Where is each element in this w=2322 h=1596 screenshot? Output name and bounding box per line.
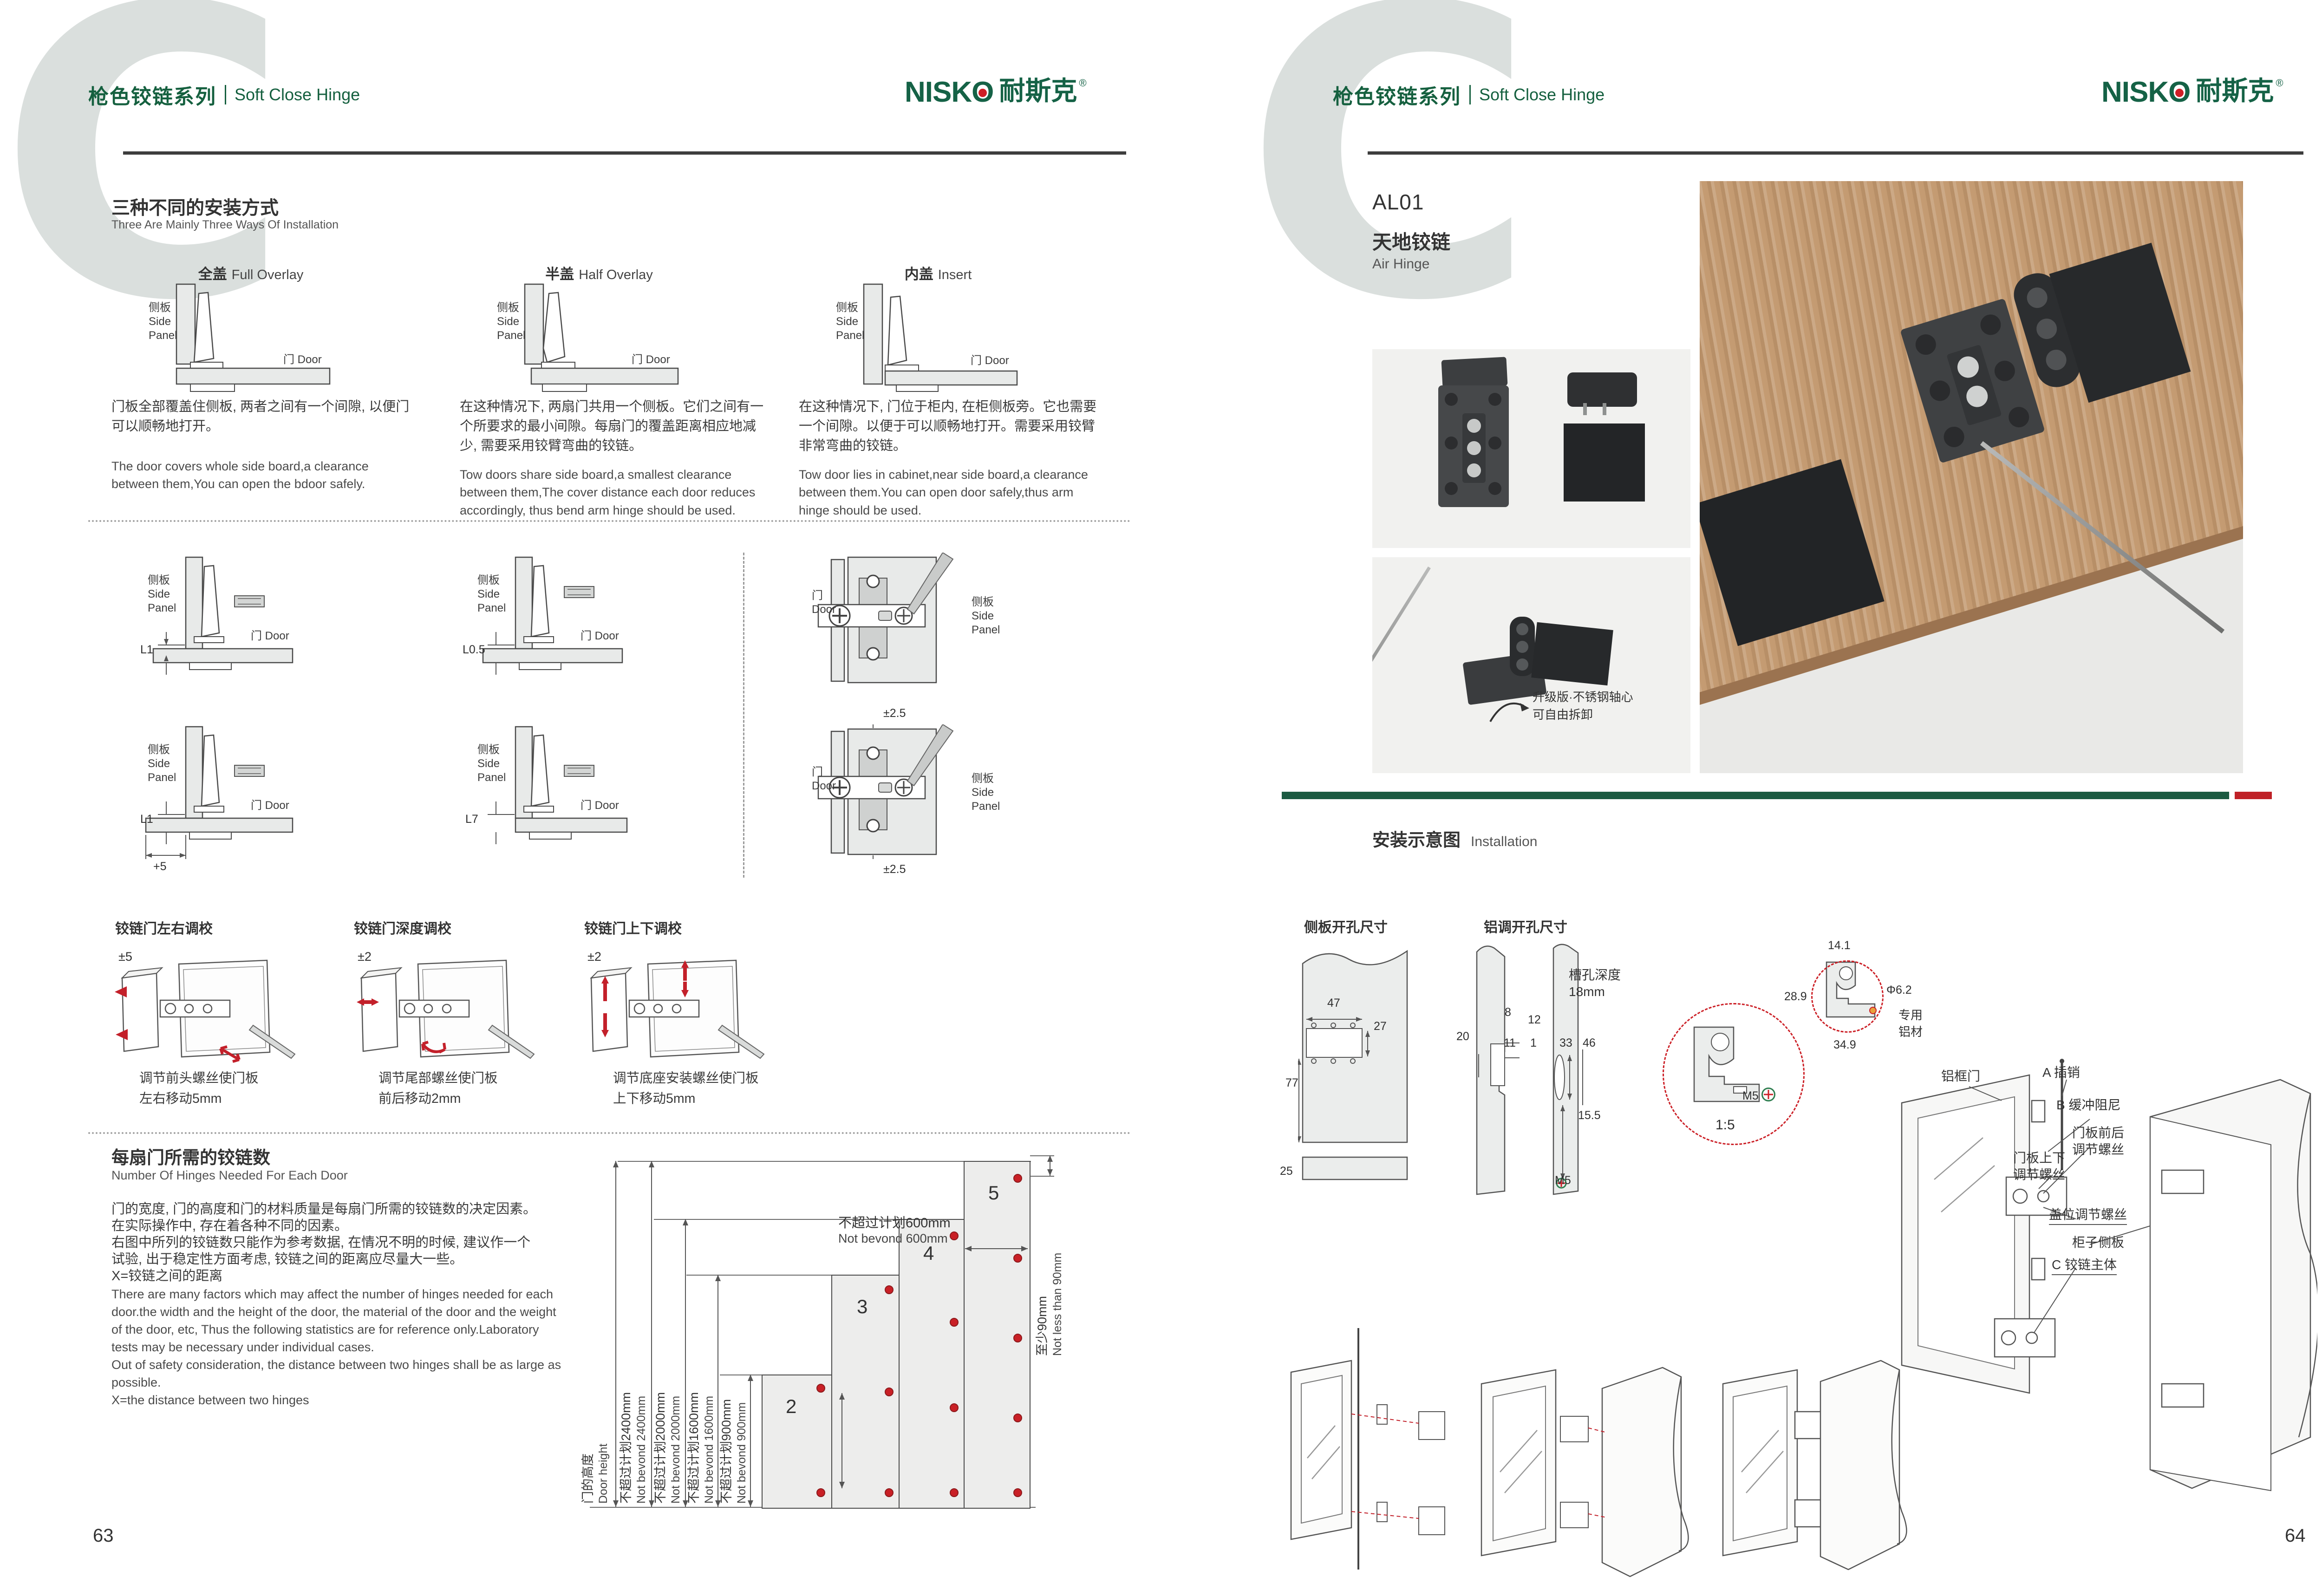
clearance-diagram-L1 [139, 550, 307, 699]
logo-cn: 耐斯克 [999, 78, 1077, 104]
series-title-en: Soft Close Hinge [1479, 85, 1605, 104]
door-label: 门 Door [251, 799, 289, 813]
hinge-door-flap [1531, 622, 1613, 686]
hinge-flap [1441, 357, 1507, 389]
arrow-door-height [615, 1161, 616, 1507]
door-label: 门 Door [283, 353, 322, 367]
product-name-cn: 天地铰链 [1372, 227, 1450, 255]
logo-red-dot-icon [978, 89, 987, 97]
watermark-c-right: C [1244, 0, 1537, 355]
chart-bar-5-value: 5 [988, 1182, 999, 1204]
hinge-count-en-line: Out of safety consideration, the distanc… [111, 1358, 561, 1372]
door-label: 门 Door [971, 354, 1009, 368]
label-2000: 不超过计划2000mm Not bevond 2000mm [653, 1392, 684, 1504]
adjust-ud-caption: 调节底座安装螺丝使门板上下移动5mm [613, 1068, 759, 1109]
page-number-64: 64 [2285, 1525, 2306, 1546]
photo-hinge-parts [1372, 349, 1690, 548]
dim-15-5: 15.5 [1578, 1109, 1601, 1122]
full-overlay-desc-cn: 门板全部覆盖住侧板, 两者之间有一个间隙, 以便门可以顺畅地打开。 [111, 397, 416, 436]
series-title-en: Soft Close Hinge [235, 85, 360, 104]
label-frame-door: 铝框门 [1941, 1068, 1980, 1085]
label-900: 不超过计划900mm Not bevond 900mm [719, 1399, 750, 1504]
page-number-63: 63 [93, 1525, 114, 1546]
side-panel-label: 侧板SidePanel [477, 743, 506, 785]
hinge-plate [1438, 385, 1509, 507]
page-header-left: 枪色铰链系列 Soft Close Hinge [88, 80, 360, 110]
side-drill-title: 侧板开孔尺寸 [1304, 916, 1388, 936]
label-90mm: 至少90mm Not less than 90mm [1035, 1253, 1065, 1356]
nisko-logo-right: NISKO 耐斯克 ® [2101, 78, 2283, 107]
header-divider [225, 85, 226, 104]
door-label: 门 Door [251, 629, 289, 643]
dim-8: 8 [1505, 1006, 1511, 1019]
arrow-90 [1050, 1155, 1050, 1176]
installation-title: 安装示意图 Installation [1372, 826, 1537, 851]
door-label: 门 Door [580, 799, 619, 813]
dim-14-1: 14.1 [1828, 939, 1851, 952]
accent-band-green [1282, 792, 2229, 799]
adjust-ud-title: 铰链门上下调校 [584, 917, 682, 938]
dim-28-9: 28.9 [1784, 990, 1807, 1003]
side-drill-diagram [1298, 943, 1414, 1189]
assembly-sequence-diagram [1286, 1319, 1946, 1579]
adjust-lr-caption: 调节前头螺丝使门板左右移动5mm [139, 1068, 259, 1109]
product-code: AL01 [1372, 189, 1424, 215]
hinge-dot [816, 1488, 825, 1497]
hinge-count-chart: 2 3 4 5 门的高度 Door height 不超过计划2400mm Not… [567, 1142, 1063, 1518]
dim-L1: L1 [140, 643, 153, 657]
logo-latin: NISKO [2101, 78, 2190, 107]
half-overlay-desc-cn: 在这种情况下, 两扇门共用一个侧板。它们之间有一个所要求的最小间隙。每扇门的覆盖… [460, 397, 764, 456]
detail-m5-label: M5 [1742, 1088, 1775, 1103]
dim-34-9: 34.9 [1833, 1038, 1856, 1052]
side-panel-label: 侧板SidePanel [836, 301, 864, 343]
dim-L1-2: L1 [140, 813, 153, 826]
label-hinge-body-c: C 铰链主体 [2052, 1257, 2117, 1275]
rod-note: 升级版·不锈钢轴心 可自由拆卸 [1533, 688, 1633, 723]
full-overlay-desc-en: The door covers whole side board,a clear… [111, 457, 418, 493]
label-1600: 不超过计划1600mm Not bevond 1600mm [686, 1392, 717, 1504]
dim-L7: L7 [465, 813, 478, 826]
insert-desc-cn: 在这种情况下, 门位于柜内, 在柜侧板旁。它也需要一个间隙。以便于可以顺畅地打开… [799, 397, 1103, 456]
chart-line-1600 [686, 1275, 833, 1276]
label-pin-a: A 插销 [2042, 1064, 2080, 1081]
divider-dotted-2 [88, 1132, 1131, 1134]
hinge-count-title-en: Number Of Hinges Needed For Each Door [111, 1168, 348, 1183]
hinge-dot [950, 1403, 959, 1412]
label-up-down-screw: 门板上下 调节螺丝 [2013, 1150, 2065, 1183]
detail-circle-small [1811, 960, 1884, 1033]
hinge-count-en-line: X=the distance between two hinges [111, 1393, 309, 1407]
hinge-knuckle [1510, 617, 1535, 676]
hinge-dot [1013, 1488, 1022, 1497]
arrow-x-distance [841, 1393, 842, 1488]
hinge-dot [1013, 1414, 1022, 1422]
logo-registered-mark: ® [1079, 78, 1086, 88]
dim-25: 25 [1280, 1165, 1293, 1178]
dim-27: 27 [1374, 1020, 1387, 1033]
dim-L0-5: L0.5 [463, 643, 485, 657]
alu-drill-title: 铝调开孔尺寸 [1484, 916, 1567, 936]
label-600: 不超过计划600mm Not bevond 600mm [838, 1212, 959, 1246]
side-panel-label: 侧板SidePanel [149, 301, 177, 343]
door-label: 门Door [812, 765, 836, 793]
dim-47: 47 [1327, 997, 1340, 1010]
page-header-right: 枪色铰链系列 Soft Close Hinge [1333, 80, 1605, 110]
label-2400: 不超过计划2400mm Not bevond 2400mm [619, 1392, 649, 1504]
hinge-dot [1013, 1254, 1022, 1263]
catalog-spread: C 枪色铰链系列 Soft Close Hinge NISKO 耐斯克 ® 三种… [0, 0, 2322, 1596]
header-divider [1469, 85, 1471, 104]
dim-plus-minus-2-5-bottom: ±2.5 [883, 863, 906, 876]
hinge-cap [1567, 372, 1637, 407]
divider-dotted-1 [88, 520, 1131, 522]
insert-desc-en: Tow door lies in cabinet,near side board… [799, 466, 1105, 519]
product-name-en: Air Hinge [1372, 256, 1429, 272]
hinge-count-en-line: tests may be necessary under individual … [111, 1340, 374, 1355]
dim-1: 1 [1530, 1036, 1537, 1050]
hinge-dot [950, 1488, 959, 1497]
dim-77: 77 [1285, 1076, 1298, 1090]
hinge-dot [1013, 1174, 1022, 1183]
hinge-count-title-cn: 每扇门所需的铰链数 [111, 1143, 270, 1169]
half-overlay-desc-en: Tow doors share side board,a smallest cl… [460, 466, 766, 519]
hinge-count-en-line: of the door, etc, Thus the following sta… [111, 1322, 539, 1337]
hinge-dot [950, 1318, 959, 1327]
adjust-depth-diagram [353, 956, 553, 1065]
label-cabinet-side: 柜子侧板 [2072, 1234, 2124, 1251]
detail-scale: 1:5 [1715, 1117, 1735, 1133]
chart-line-900 [720, 1375, 764, 1375]
dim-m5: M5 [1555, 1174, 1571, 1187]
label-cover-screw: 盖位调节螺丝 [2049, 1206, 2127, 1225]
dim-20: 20 [1456, 1030, 1469, 1043]
dim-46: 46 [1583, 1036, 1596, 1050]
photo-hinge-on-board [1700, 181, 2243, 773]
series-title-cn: 枪色铰链系列 [88, 80, 216, 110]
side-panel-label: 侧板SidePanel [148, 743, 176, 785]
logo-cn: 耐斯克 [2196, 78, 2274, 104]
mounting-plate-diagram-1 [789, 553, 989, 687]
dim-6-2: Φ6.2 [1886, 984, 1912, 997]
sec1-title-en: Three Are Mainly Three Ways Of Installat… [111, 218, 339, 232]
chart-bar-3-value: 3 [857, 1296, 867, 1318]
hinge-count-en-line: There are many factors which may affect … [111, 1287, 553, 1302]
label-damper-b: B 缓冲阻尼 [2056, 1097, 2120, 1114]
door-label: 门 Door [632, 353, 670, 367]
special-aluminum-note: 专用 铝材 [1898, 1007, 1923, 1040]
adjust-depth-caption: 调节尾部螺丝使门板前后移动2mm [378, 1068, 498, 1109]
arrow-2000 [685, 1219, 686, 1507]
door-label: 门Door [812, 589, 836, 617]
hinge-dot [885, 1285, 894, 1294]
adjust-lr-title: 铰链门左右调校 [115, 917, 213, 938]
label-front-back-screw: 门板前后 调节螺丝 [2072, 1125, 2124, 1158]
steel-rod [1372, 567, 1431, 773]
side-panel-label: 侧板SidePanel [497, 301, 525, 343]
arrow-900 [750, 1375, 751, 1507]
hinge-count-en-line: possible. [111, 1375, 161, 1390]
dim-plus5: +5 [153, 860, 167, 873]
adjust-depth-title: 铰链门深度调校 [354, 917, 451, 938]
logo-red-dot-icon [2175, 89, 2184, 97]
sec1-title-cn: 三种不同的安装方式 [111, 193, 279, 220]
nisko-logo-left: NISKO 耐斯克 ® [905, 78, 1087, 107]
dim-plus-minus-2-5-top: ±2.5 [883, 707, 906, 720]
series-title-cn: 枪色铰链系列 [1333, 80, 1461, 110]
arrow-600 [965, 1248, 1028, 1249]
hinge-dot [950, 1231, 959, 1240]
cover-pad [1564, 423, 1645, 502]
header-rule-left [123, 151, 1126, 155]
dim-11: 11 [1504, 1036, 1516, 1050]
door-label: 门 Door [580, 629, 619, 643]
chart-bar-2-value: 2 [786, 1395, 796, 1418]
arrow-1600 [717, 1275, 718, 1507]
arrow-2400 [651, 1161, 652, 1507]
hinge-count-cn-line: X=铰链之间的距离 [111, 1265, 222, 1284]
slot-depth-note: 槽孔深度 18mm [1569, 967, 1621, 1000]
side-panel-label: 侧板SidePanel [972, 595, 1000, 637]
side-panel-label: 侧板SidePanel [148, 573, 176, 615]
hinge-count-en-line: door.the width and the height of the doo… [111, 1305, 556, 1319]
side-panel-label: 侧板SidePanel [477, 573, 506, 615]
dim-33: 33 [1559, 1036, 1572, 1050]
hinge-dot [885, 1488, 894, 1497]
m5-crosshair-icon [1761, 1088, 1775, 1101]
hinge-dot [1013, 1334, 1022, 1342]
dim-12: 12 [1528, 1013, 1541, 1027]
accent-band-red [2235, 792, 2272, 799]
header-rule-right [1368, 151, 2303, 155]
adjust-lr-diagram [114, 956, 313, 1065]
divider-dashed-vertical [743, 553, 744, 878]
label-door-height: 门的高度 Door height [580, 1444, 611, 1504]
hinge-dot [885, 1388, 894, 1396]
photo-hinge-rod: 升级版·不锈钢轴心 可自由拆卸 [1372, 557, 1690, 773]
side-panel-label: 侧板SidePanel [972, 772, 1000, 814]
hinge-dot [816, 1384, 825, 1393]
logo-latin: NISKO [905, 78, 993, 107]
adjust-ud-diagram [583, 956, 783, 1065]
clearance-diagram-L0-5 [469, 550, 636, 699]
callout-arrow-icon [1487, 693, 1532, 725]
tick-90-bottom [1030, 1176, 1054, 1177]
logo-registered-mark: ® [2276, 78, 2283, 88]
